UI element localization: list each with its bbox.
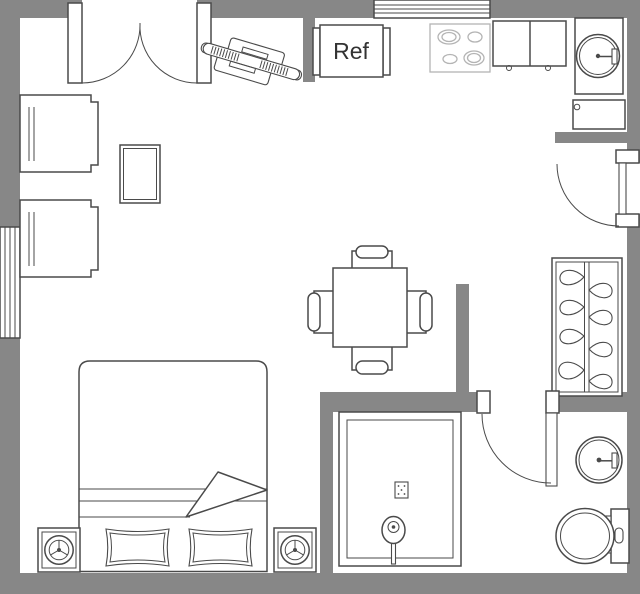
dining-chair-top [352, 246, 392, 269]
door-leaf [619, 163, 626, 214]
side-table [120, 145, 160, 203]
shower-drain [395, 482, 408, 498]
pillow-left [106, 529, 169, 566]
armchair-top [20, 95, 98, 172]
floor-plan-stage: Ref [0, 0, 640, 594]
door-jamb-top [616, 150, 639, 163]
pillow-right [189, 529, 252, 566]
armchair-bottom [20, 200, 98, 277]
floor-plan-svg: Ref [0, 0, 640, 594]
toilet-bowl [556, 509, 614, 564]
plant-shelf [552, 258, 622, 396]
shower [339, 412, 461, 566]
stove-four-burners [430, 24, 490, 72]
toilet [556, 509, 629, 564]
speaker-left [38, 528, 80, 572]
speaker-right [274, 528, 316, 572]
door-jamb-right [546, 391, 559, 413]
sink-cabinet [573, 100, 625, 129]
kitchen-counter [493, 21, 566, 71]
top-window [374, 0, 490, 18]
door-jamb-left [477, 391, 490, 413]
refrigerator: Ref [313, 25, 390, 77]
door-leaf-left [68, 3, 82, 83]
left-window [0, 227, 20, 338]
dining-table [333, 268, 407, 347]
door-jamb-bottom [616, 214, 639, 227]
ref-label: Ref [333, 38, 369, 64]
kitchen-sink [575, 18, 623, 94]
flush-button [615, 528, 623, 543]
double-bed [79, 361, 267, 572]
door-leaf [546, 413, 557, 486]
